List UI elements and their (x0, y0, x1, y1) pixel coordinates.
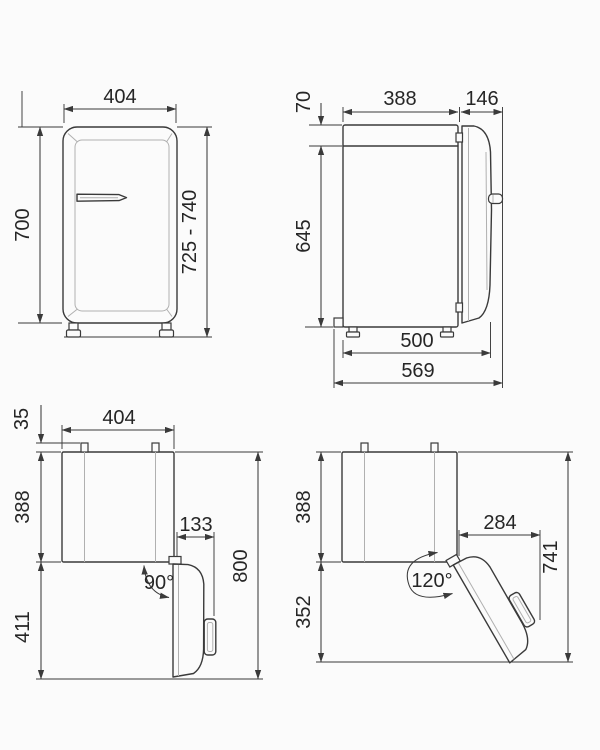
top120-fridge-body (342, 443, 547, 665)
front-fridge-body (63, 127, 177, 337)
top120-door-swing-label: 352 (293, 595, 315, 628)
top90-width-label: 404 (102, 407, 135, 429)
side-door (456, 126, 503, 323)
view-side: 388 146 70 645 500 569 (293, 88, 503, 388)
side-door-depth-label: 146 (465, 88, 498, 110)
top90-hinge-offset-label: 35 (11, 408, 33, 430)
top90-dimensions: 404 35 388 411 800 133 90° (11, 405, 258, 679)
side-hinge-bottom (456, 303, 463, 312)
top90-extension-lines (36, 425, 263, 679)
side-rear-spacer (334, 318, 343, 327)
dimension-diagram-page: 404 700 725 - 740 (0, 0, 600, 750)
view-front: 404 700 725 - 740 (12, 86, 212, 337)
top120-body-depth-label: 388 (293, 490, 315, 523)
front-feet (67, 323, 174, 337)
top120-hinge-tab-left (361, 443, 368, 452)
top90-hinge-tab-left (81, 443, 88, 452)
front-width-label: 404 (103, 86, 136, 108)
top90-body-depth-label: 388 (12, 490, 34, 523)
dimension-diagram: 404 700 725 - 740 (0, 0, 600, 750)
top90-fridge-body (62, 443, 216, 677)
front-total-height-label: 725 - 740 (179, 190, 201, 275)
side-hinge-top (456, 133, 463, 142)
top120-dimensions: 388 352 741 284 120° (293, 452, 568, 662)
side-depth-to-door-label: 500 (400, 330, 433, 352)
front-chamfer-br (167, 309, 173, 317)
top90-angle-label: 90° (144, 572, 174, 594)
top90-door-swing-label: 411 (12, 611, 34, 643)
front-chamfer-bl (68, 309, 78, 317)
side-top-offset-label: 70 (293, 91, 315, 113)
front-door-panel (75, 140, 169, 311)
front-chamfer-tl (68, 134, 78, 143)
top120-angle-label: 120° (411, 570, 452, 592)
side-body-depth-label: 388 (383, 88, 416, 110)
top120-door-projection-label: 284 (483, 512, 516, 534)
side-handle (489, 194, 503, 204)
top90-open-door (169, 557, 216, 678)
side-door-outline (462, 126, 492, 323)
front-dimensions: 404 700 725 - 740 (12, 86, 207, 337)
front-chamfer-tr (167, 134, 173, 143)
top90-hinge-tab-right (152, 443, 159, 452)
front-body-height-label: 700 (12, 208, 34, 241)
side-body-outline (343, 125, 458, 327)
side-dimensions: 388 146 70 645 500 569 (293, 88, 503, 383)
side-door-curve-line (486, 152, 487, 290)
top120-hinge-tab-right (431, 443, 438, 452)
side-total-depth-label: 569 (401, 360, 434, 382)
top120-total-clearance-label: 741 (540, 540, 562, 573)
top90-door-projection-label: 133 (179, 514, 212, 536)
top90-total-clearance-label: 800 (230, 549, 252, 582)
top90-body-outline (62, 452, 174, 562)
top120-extension-lines (316, 452, 573, 662)
front-body-outline (63, 127, 177, 323)
side-body-height-label: 645 (293, 219, 315, 252)
view-top-120: 388 352 741 284 120° (293, 443, 573, 665)
side-fridge-body (334, 125, 503, 337)
top120-body-outline (342, 452, 457, 562)
view-top-90: 404 35 388 411 800 133 90° (11, 405, 263, 679)
top120-open-door (446, 537, 547, 665)
